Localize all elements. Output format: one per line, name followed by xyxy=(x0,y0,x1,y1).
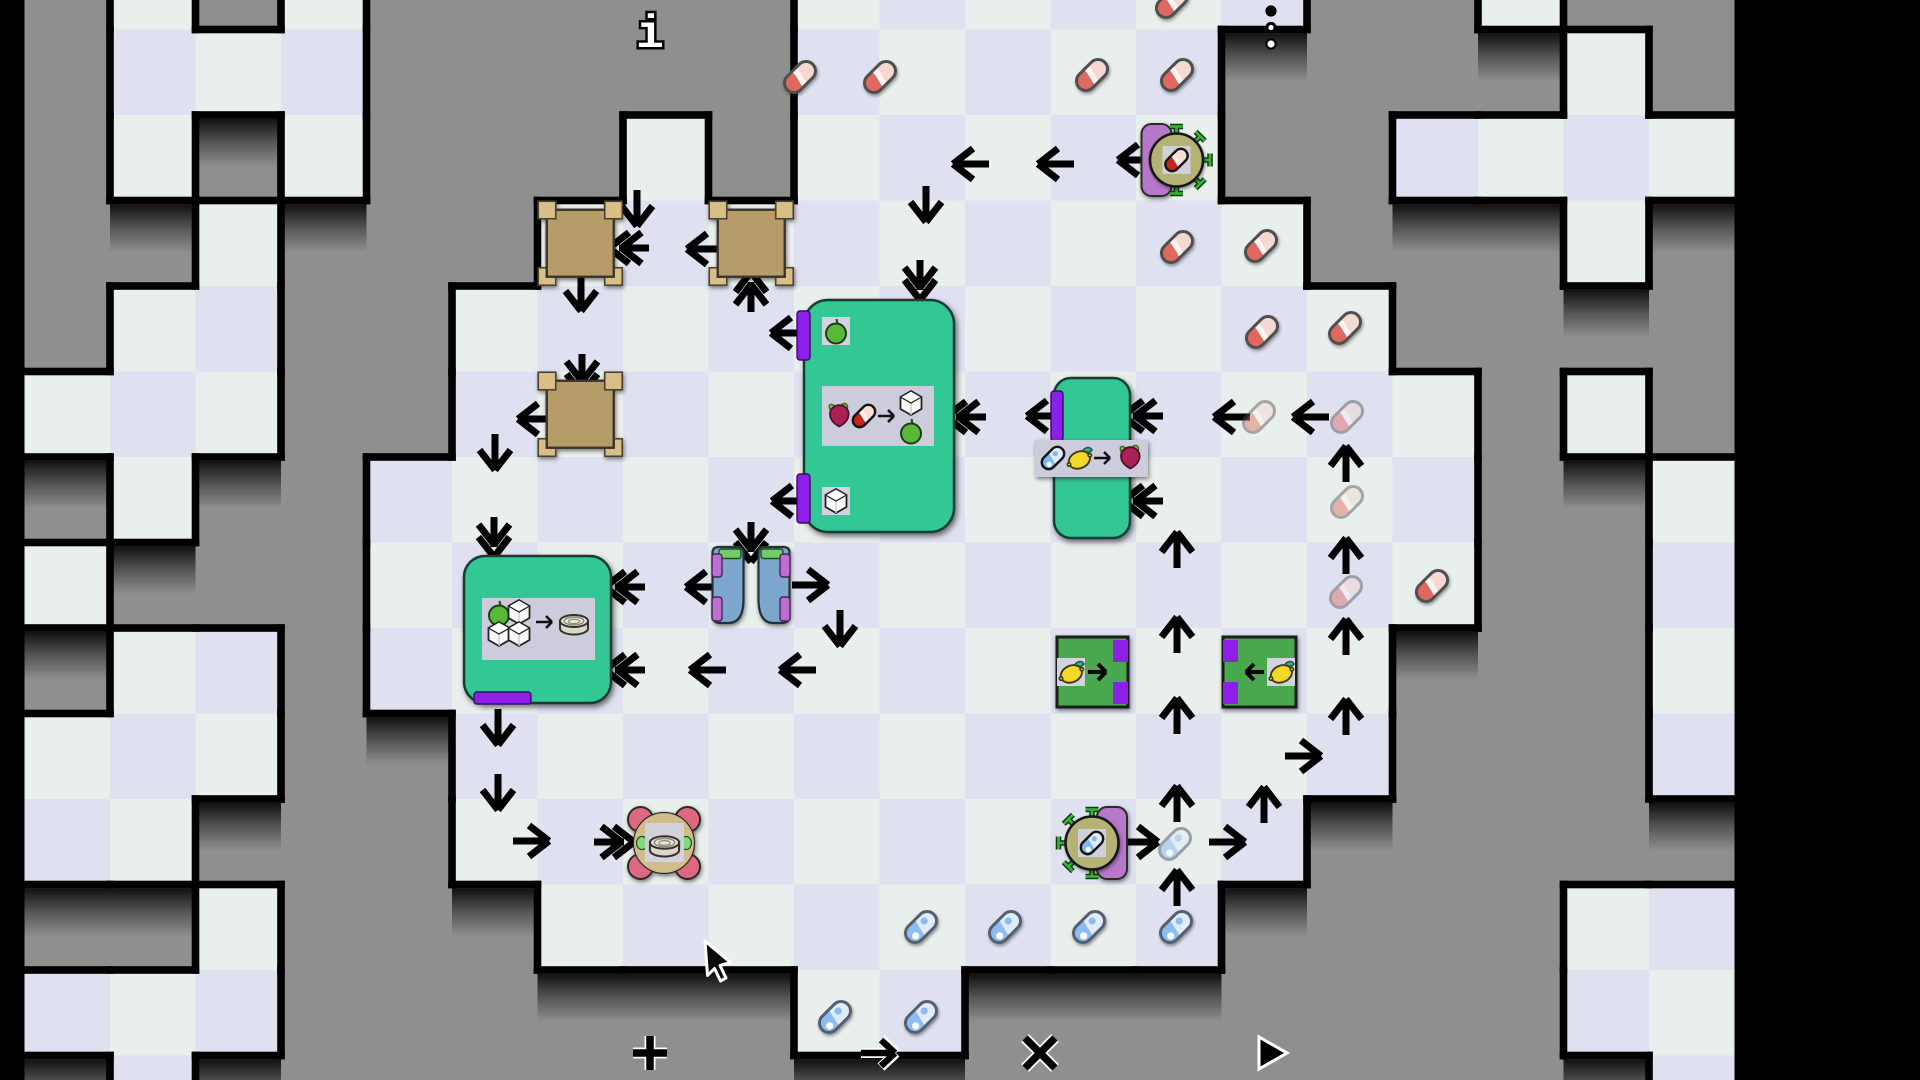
svg-text:i: i xyxy=(636,9,664,61)
